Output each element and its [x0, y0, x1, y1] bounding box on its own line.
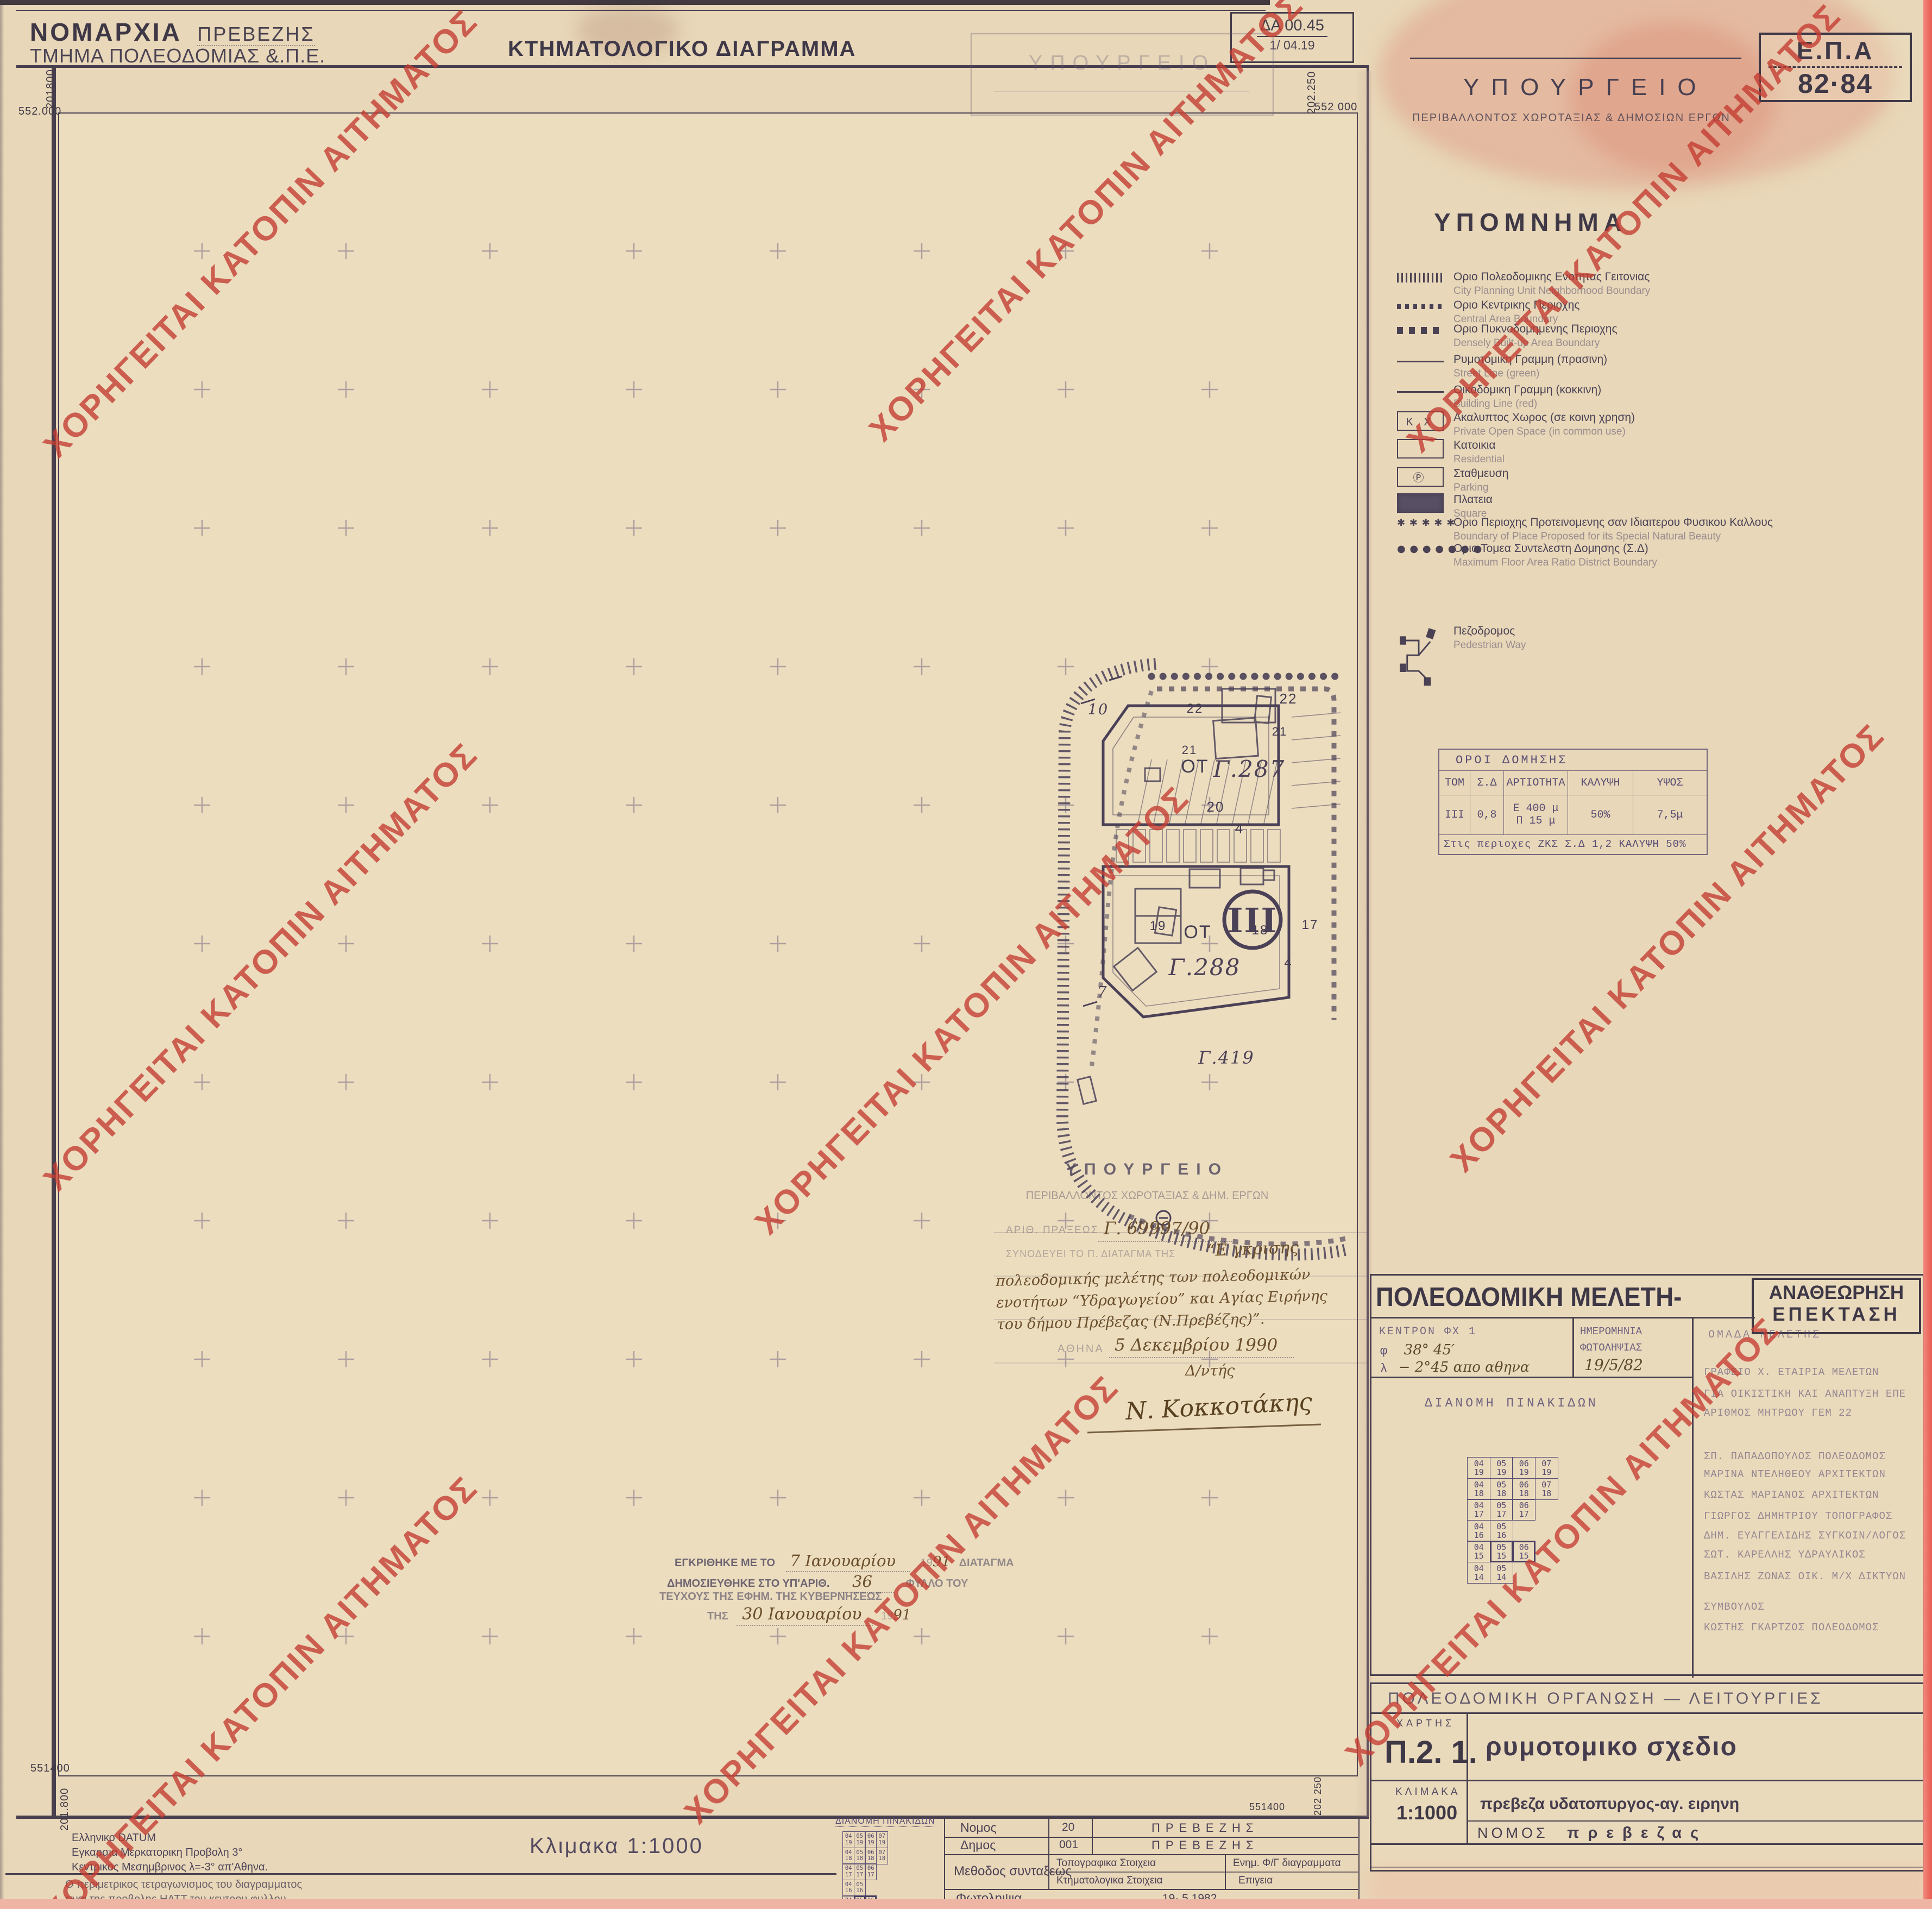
legend-line-symbol-icon: [1397, 391, 1444, 393]
legend-hatch-symbol-icon: [1397, 273, 1444, 282]
lambda-symbol: λ: [1380, 1362, 1387, 1376]
area-name: πρεβεζα υδατοπυργος-αγ. ειρηνη: [1480, 1795, 1739, 1813]
legend-item: ΚατοικιαResidential: [1397, 439, 1913, 466]
legend-item: Οριο Κεντρικης ΠεριοχηςCentral Area Boun…: [1397, 299, 1913, 325]
ministry-rule: [1410, 58, 1741, 59]
legend-glyphs-symbol-icon: ✱ ✱ ✱ ✱ ✱: [1397, 517, 1444, 543]
cadastral-map-sheet: ΝΟΜΑΡΧΙΑ ΠΡΕΒΕΖΗΣ ΤΜΗΜΑ ΠΟΛΕΟΔΟΜΙΑΣ &.Π.…: [0, 0, 1932, 1909]
scale-note: Κλιμακα 1:1000: [530, 1834, 703, 1858]
sheet-grid-cell: 0416: [1467, 1520, 1490, 1542]
sheet-grid-cell: 0419: [1467, 1457, 1490, 1479]
cell-tom: III: [1439, 795, 1470, 834]
photo-date-label2: ΦΩΤΟΛΗΨΙΑΣ: [1580, 1342, 1642, 1354]
dimos-row-label: Δημος: [960, 1838, 996, 1853]
panel-line: [1371, 1780, 1923, 1781]
legend-label-greek: Οικοδομικη Γραμμη (κοκκινη): [1453, 384, 1913, 397]
col-header-kalypsi: ΚΑΛΥΨΗ: [1568, 770, 1633, 795]
sheet-grid-cell: 0517: [1490, 1499, 1513, 1521]
sheet-grid-cell: 0414: [1467, 1562, 1490, 1584]
ministry-title: ΥΠΟΥΡΓΕΙΟ: [1463, 74, 1708, 101]
sheet-grid-cell: 0417: [1467, 1499, 1490, 1521]
mini-sheet-index-label: ΔΙΑΝΟΜΗ ΠΙΝΑΚΙΔΩΝ: [835, 1817, 935, 1827]
team-member-line: ΣΠ. ΠΑΠΑΔΟΠΟΥΛΟΣ ΠΟΛΕΟΔΟΜΟΣ: [1704, 1450, 1886, 1462]
legend-label-english: Parking: [1453, 482, 1913, 494]
stamp-praxis-number: Γ. 69997/90: [1098, 1218, 1232, 1242]
sheet-grid-cell: 0515: [1490, 1541, 1513, 1562]
team-member-line: ΣΥΜΒΟΥΛΟΣ: [1704, 1601, 1765, 1613]
sheet-grid-cell: 0517: [854, 1863, 866, 1880]
sheet-grid-cell: 0619: [865, 1831, 877, 1848]
sheet-grid-cell: 0718: [876, 1848, 888, 1864]
panel-line: [1467, 1712, 1468, 1843]
table-line: [1048, 1872, 1358, 1873]
panel-line: [1692, 1317, 1694, 1678]
legend-label-greek: Κατοικια: [1453, 439, 1913, 452]
cell-kalypsi: 50%: [1568, 795, 1633, 834]
legend-item: ● ● ● ● ● ● ●Οριο Τομεα Συντελεστη Δομησ…: [1397, 542, 1913, 569]
legend-line-symbol-icon: [1397, 361, 1444, 362]
mini-sheet-index-grid: 0419051906190719041805180618071804170517…: [843, 1832, 888, 1909]
sheet-grid-cell: 0617: [865, 1863, 877, 1880]
legend-item: Κ ΧΑκαλυπτος Χωρος (σε κοινη χρηση)Priva…: [1397, 411, 1913, 438]
legend-item: ✱ ✱ ✱ ✱ ✱Οριο Περιοχης Προτεινομενης σαν…: [1397, 516, 1913, 543]
grid-northing-label: 202 250: [1312, 1772, 1324, 1816]
building-terms-title: ΟΡΟΙ ΔΟΜΗΣΗΣ: [1439, 750, 1707, 770]
nomos-row-value: ΠΡΕΒΕΖΗΣ: [1151, 1821, 1259, 1835]
team-member-line: ΜΑΡΙΝΑ ΝΤΕΛΗΘΕΟΥ ΑΡΧΙΤΕΚΤΩΝ: [1704, 1468, 1886, 1480]
table-line: [945, 1854, 1358, 1855]
sheet-grid-cell: 0418: [1467, 1478, 1490, 1500]
panel-line: [1371, 1712, 1923, 1714]
sheet-grid-cell: 0519: [1490, 1457, 1513, 1479]
revision-label: ΑΝΑΘΕΩΡΗΣΗ: [1754, 1282, 1919, 1304]
photo-date-value: 19/5/82: [1584, 1356, 1643, 1374]
stamp-signature: Ν. Κοκκοτάκης: [1125, 1388, 1313, 1426]
ministry-approval-stamp: ΥΠΟΥΡΓΕΙΟ ΠΕΡΙΒΑΛΛΟΝΤΟΣ ΧΩΡΟΤΑΞΙΑΣ & ΔΗΜ…: [1006, 1160, 1354, 1432]
legend-item: Οριο Πυκνοδομημενης ΠεριοχηςDensely Buil…: [1397, 323, 1913, 349]
legend-label-english: Building Line (red): [1453, 398, 1913, 410]
panel-line: [1467, 1820, 1923, 1822]
sheet-grid-cell: 0719: [1535, 1457, 1558, 1479]
legend-label-english: Boundary of Place Proposed for its Speci…: [1453, 531, 1913, 543]
team-member-line: ΒΑΣΙΛΗΣ ΖΩΝΑΣ ΟΙΚ. Μ/Χ ΔΙΚΤΥΩΝ: [1704, 1571, 1906, 1583]
col-header-sd: Σ.Δ: [1470, 770, 1503, 795]
team-member-line: ΣΩΤ. ΚΑΡΕΛΛΗΣ ΥΔΡΑΥΛΙΚΟΣ: [1704, 1549, 1866, 1561]
stamp-ministry-title: ΥΠΟΥΡΓΕΙΟ: [1006, 1160, 1288, 1179]
legend-label-greek: Πλατεια: [1453, 493, 1913, 506]
legend-label-english: Residential: [1453, 454, 1913, 466]
legend-label-greek: Ακαλυπτος Χωρος (σε κοινη χρηση): [1453, 411, 1913, 424]
legend-label-english: Pedestrian Way: [1453, 639, 1913, 651]
sheet-grid-cell: 0418: [842, 1848, 854, 1864]
scan-right-red-strip: [1923, 0, 1932, 1909]
gazette-l3: ΤΕΥΧΟΥΣ ΤΗΣ ΕΦΗΜ. ΤΗΣ ΚΥΒΕΡΝΗΣΕΩΣ: [659, 1591, 882, 1603]
revision-extension-box: ΑΝΑΘΕΩΡΗΣΗ ΕΠΕΚΤΑΣΗ: [1752, 1278, 1921, 1334]
grid-easting-label: 552 000: [1314, 101, 1357, 114]
map-frame-left: [52, 65, 56, 1819]
grid-easting-label: 551400: [1249, 1801, 1285, 1813]
sheet-grid-cell: 0416: [842, 1880, 854, 1897]
sheet-grid-cell: 0518: [1490, 1478, 1513, 1500]
team-member-line: ΚΩΣΤΑΣ ΜΑΡΙΑΝΟΣ ΑΡΧΙΤΕΚΤΩΝ: [1704, 1489, 1879, 1501]
sheet-title: ΚΤΗΜΑΤΟΛΟΓΙΚΟ ΔΙΑΓΡΑΜΜΑ: [508, 37, 856, 61]
team-member-line: ΓΙΩΡΓΟΣ ΔΗΜΗΤΡΙΟΥ ΤΟΠΟΓΡΑΦΟΣ: [1704, 1510, 1892, 1522]
nomos-value: πρεβεζας: [1567, 1824, 1707, 1842]
org-header: ΠΟΛΕΟΔΟΜΙΚΗ ΟΡΓΑΝΩΣΗ — ΛΕΙΤΟΥΡΓΙΕΣ: [1388, 1690, 1823, 1708]
sheet-grid-cell: 0415: [1467, 1541, 1490, 1562]
team-member-line: ΚΩΣΤΗΣ ΓΚΑΡΤΖΟΣ ΠΟΛΕΟΔΟΜΟΣ: [1704, 1622, 1879, 1634]
map-title: ρυμοτομικο σχεδιο: [1486, 1732, 1738, 1762]
extension-label: ΕΠΕΚΤΑΣΗ: [1754, 1304, 1919, 1326]
agency-region: ΠΡΕΒΕΖΗΣ: [197, 23, 314, 46]
dimos-row-num: 001: [1059, 1838, 1078, 1851]
legend-label-greek: Σταθμευση: [1453, 467, 1913, 480]
team-member-line: ΔΗΜ. ΕΥΑΓΓΕΛΙΔΗΣ ΣΥΓΚΟΙΝ/ΛΟΓΟΣ: [1704, 1530, 1906, 1542]
grid-northing-label: 201.800: [59, 1782, 71, 1831]
study-title: ΠΟΛΕΟΔΟΜΙΚΗ ΜΕΛΕΤΗ-: [1376, 1282, 1682, 1313]
stamp-subject-text: πολεοδομικής μελέτης των πολεοδομικών εν…: [996, 1263, 1355, 1336]
cell-ypsos: 7,5μ: [1633, 795, 1707, 834]
method-label: Μεθοδος συνταξεως: [954, 1864, 1072, 1879]
legend-label-english: Private Open Space (in common use): [1453, 426, 1913, 438]
stamp-date: 5 Δεκεμβρίου 1990: [1109, 1335, 1294, 1358]
photo-date-label1: ΗΜΕΡΟΜΗΝΙΑ: [1580, 1326, 1642, 1337]
agency-department: ΤΜΗΜΑ ΠΟΛΕΟΔΟΜΙΑΣ &.Π.Ε.: [30, 45, 325, 67]
legend-boxdark-symbol-icon: [1397, 493, 1444, 513]
sheet-grid-cell: 0417: [842, 1863, 854, 1880]
nomos-row-label: Νομος: [960, 1820, 997, 1835]
panel-line: [1371, 1867, 1923, 1868]
col-header-ypsos: ΥΨΟΣ: [1633, 770, 1707, 795]
scan-left-edge: [0, 5, 4, 1909]
method-cadastral: Κτηματολογικα Στοιχεια: [1056, 1875, 1163, 1887]
sheet-index-label: ΔΙΑΝΟΜΗ ΠΙΝΑΚΙΔΩΝ: [1425, 1396, 1599, 1410]
gazette-l2-pre: ΔΗΜΟΣΙΕΥΘΗΚΕ ΣΤΟ ΥΠ'ΑΡΙΘ.: [667, 1578, 829, 1590]
grid-northing-label: 201800: [45, 64, 57, 109]
nomos-row-num: 20: [1062, 1821, 1074, 1834]
legend-label-greek: Πεζοδρομος: [1453, 625, 1913, 638]
legend-item: ⓅΣταθμευσηParking: [1397, 467, 1913, 494]
scan-top-edge: [0, 0, 1270, 5]
panel-line: [1371, 1843, 1923, 1845]
legend-label-greek: Οριο Τομεα Συντελεστη Δομησης (Σ.Δ): [1453, 542, 1913, 555]
sheet-grid-cell: 0518: [854, 1848, 866, 1864]
sheet-grid-cell: 0516: [854, 1880, 866, 1897]
panel-line: [1371, 1317, 1755, 1318]
method-topo: Τοπογραφικα Στοιχεια: [1056, 1857, 1156, 1869]
pedestrian-way-icon: [1397, 625, 1440, 688]
sheet-fold-shadow: [1354, 71, 1371, 1817]
table-line: [1092, 1818, 1093, 1854]
sheet-info-table: Νομος 20 ΠΡΕΒΕΖΗΣ Δημος 001 ΠΡΕΒΕΖΗΣ Μεθ…: [944, 1817, 1360, 1909]
legend-label-english: Maximum Floor Area Ratio District Bounda…: [1453, 557, 1913, 569]
gazette-l4-pre: ΤΗΣ: [707, 1610, 728, 1622]
table-line: [945, 1837, 1358, 1838]
table-line: [945, 1889, 1358, 1890]
sheet-grid-cell: 0419: [842, 1831, 854, 1848]
method-cadastral-value: Επιγεια: [1238, 1875, 1273, 1887]
grid-easting-label: 551400: [30, 1762, 70, 1775]
col-header-artiotita: ΑΡΤΙΟΤΗΤΑ: [1503, 770, 1568, 795]
map-frame-top: [16, 65, 1369, 68]
legend-glyphs-symbol-icon: ● ● ● ● ● ● ●: [1397, 543, 1444, 569]
scan-bottom-pink-strip: [0, 1899, 1932, 1909]
stamp-city-label: ΑΘΗΝΑ: [1058, 1343, 1104, 1355]
legend-boxtext-symbol-icon: Ⓟ: [1397, 467, 1444, 487]
stamp-role: Δ/ντής: [1185, 1362, 1235, 1379]
agency-name: ΝΟΜΑΡΧΙΑ: [30, 18, 182, 46]
phi-symbol: φ: [1380, 1345, 1387, 1358]
sheet-grid-cell: 0618: [865, 1848, 877, 1864]
team-member-line: ΑΡΙΘΜΟΣ ΜΗΤΡΩΟΥ ΓΕΜ 22: [1704, 1407, 1852, 1419]
scale-label: ΚΛΙΜΑΚΑ: [1395, 1786, 1461, 1798]
legend-dashsq-symbol-icon: [1397, 304, 1444, 309]
cell-sd: 0,8: [1470, 795, 1503, 834]
legend-item: Οριο Πολεοδομικης Ενοτητας ΓειτονιαςCity…: [1397, 271, 1913, 297]
legend-label-english: Street Line (green): [1453, 368, 1913, 380]
stamp-subject-line: “Ε γκρισης: [1206, 1238, 1299, 1260]
gazette-l1-pre: ΕΓΚΡΙΘΗΚΕ ΜΕ ΤΟ: [675, 1557, 775, 1569]
sheet-grid-cell: 0719: [876, 1831, 888, 1848]
gazette-decree-date: 7 Ιανουαρίου: [786, 1552, 910, 1572]
sheet-grid-cell: 0718: [1535, 1478, 1558, 1500]
panel-line: [1371, 1377, 1692, 1378]
lambda-value: − 2°45 απο αθηνα: [1399, 1359, 1530, 1376]
sheet-grid-cell: 0519: [854, 1831, 866, 1848]
header-top-rule: [16, 10, 1266, 11]
sheet-grid-cell: 0618: [1512, 1478, 1535, 1500]
ministry-subtitle: ΠΕΡΙΒΑΛΛΟΝΤΟΣ ΧΩΡΟΤΑΞΙΑΣ & ΔΗΜΟΣΙΩΝ ΕΡΓΩ…: [1412, 112, 1730, 124]
signature-underline: [1087, 1423, 1321, 1433]
phi-value: 38° 45′: [1404, 1342, 1455, 1358]
legend-item: ΠεζοδρομοςPedestrian Way: [1397, 625, 1913, 690]
legend-label-greek: Οριο Πολεοδομικης Ενοτητας Γειτονιας: [1453, 271, 1913, 284]
building-terms-footnote: Στις περιοχες ΖΚΣ Σ.Δ 1,2 ΚΑΛΥΨΗ 50%: [1439, 834, 1707, 854]
stamp-decree-label: ΣΥΝΟΔΕΥΕΙ ΤΟ Π. ΔΙΑΤΑΓΜΑ ΤΗΣ: [1006, 1248, 1175, 1260]
map-inner-frame: [58, 112, 1358, 1776]
cell-artiotita: Ε 400 μ Π 15 μ: [1503, 795, 1568, 834]
col-header-tom: ΤΟΜ: [1439, 770, 1470, 795]
legend-label-english: City Planning Unit Neighborhood Boundary: [1453, 285, 1913, 297]
svg-text:ΥΠΟΥΡΓΕΙΟ: ΥΠΟΥΡΓΕΙΟ: [1029, 52, 1216, 74]
stamp-ministry-subtitle: ΠΕΡΙΒΑΛΛΟΝΤΟΣ ΧΩΡΟΤΑΞΙΑΣ & ΔΗΜ. ΕΡΓΩΝ: [1006, 1190, 1288, 1202]
datum-note-rule: [5, 1873, 836, 1875]
nomos-label: ΝΟΜΟΣ: [1477, 1825, 1549, 1841]
building-terms-table: ΟΡΟΙ ΔΟΜΗΣΗΣ ΤΟΜ Σ.Δ ΑΡΤΙΟΤΗΤΑ ΚΑΛΥΨΗ ΥΨ…: [1438, 749, 1708, 855]
scale-value: 1:1000: [1396, 1801, 1457, 1824]
legend-squares-symbol-icon: [1397, 327, 1444, 334]
agency-title: ΝΟΜΑΡΧΙΑ ΠΡΕΒΕΖΗΣ: [30, 17, 315, 47]
map-title-panel: ΠΟΛΕΟΔΟΜΙΚΗ ΟΡΓΑΝΩΣΗ — ΛΕΙΤΟΥΡΓΙΕΣ ΧΑΡΤΗ…: [1370, 1682, 1924, 1872]
center-label: ΚΕΝΤΡΟΝ ΦΧ 1: [1379, 1326, 1477, 1338]
sheet-grid-cell: 0619: [1512, 1457, 1535, 1479]
panel-line: [1572, 1317, 1574, 1377]
sheet-grid-cell: 0617: [1512, 1499, 1535, 1521]
legend-pedestrian-symbol-icon: [1397, 625, 1444, 690]
dimos-row-value: ΠΡΕΒΕΖΗΣ: [1151, 1838, 1259, 1853]
method-topo-value: Ενημ. Φ/Γ διαγραμματα: [1233, 1857, 1341, 1869]
stamp-praxis-label: ΑΡΙΘ. ΠΡΑΞΕΩΣ: [1006, 1224, 1099, 1236]
sheet-grid-cell: 0516: [1490, 1520, 1513, 1542]
legend-label-greek: Οριο Περιοχης Προτεινομενης σαν Ιδιαιτερ…: [1453, 516, 1913, 529]
